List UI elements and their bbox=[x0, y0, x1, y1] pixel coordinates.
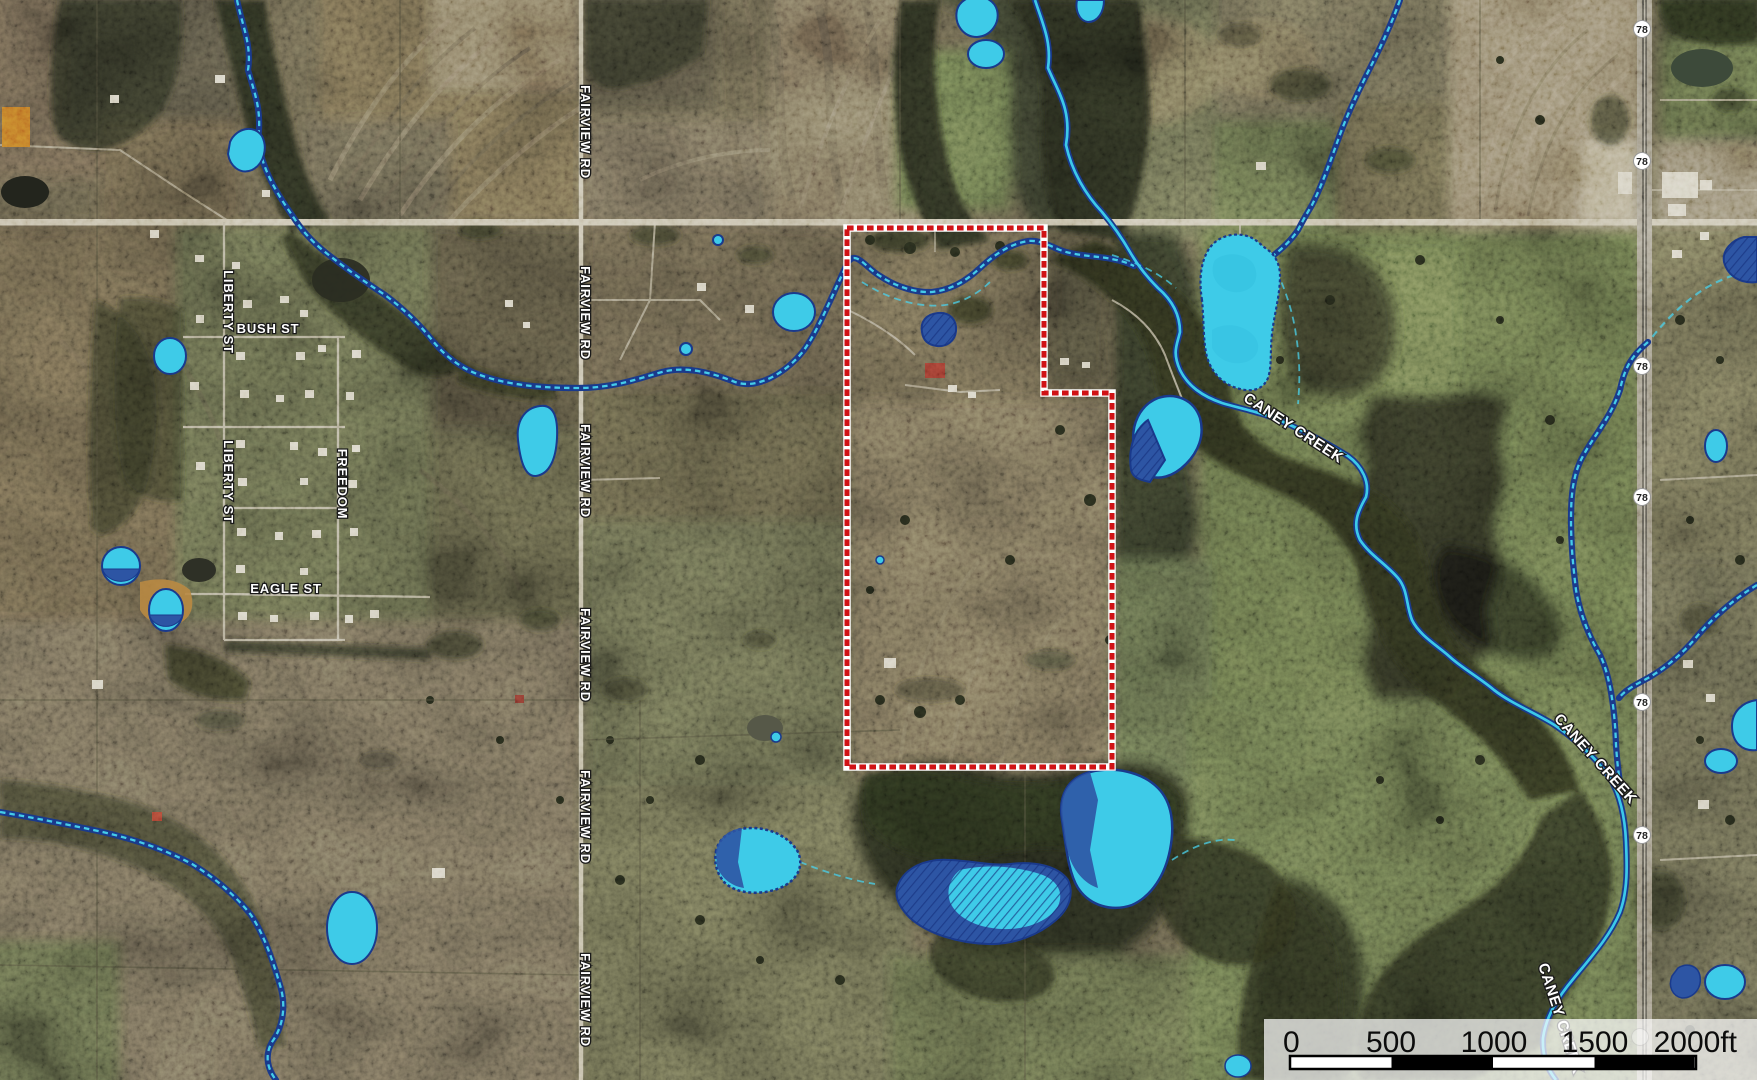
svg-text:1500: 1500 bbox=[1562, 1026, 1629, 1059]
svg-text:0: 0 bbox=[1283, 1026, 1300, 1059]
svg-text:78: 78 bbox=[1636, 492, 1648, 504]
svg-text:78: 78 bbox=[1636, 697, 1648, 709]
svg-text:78: 78 bbox=[1636, 24, 1648, 36]
svg-text:FAIRVIEW RD: FAIRVIEW RD bbox=[578, 85, 593, 179]
svg-text:FAIRVIEW RD: FAIRVIEW RD bbox=[578, 770, 593, 864]
svg-text:1000: 1000 bbox=[1461, 1026, 1528, 1059]
svg-text:78: 78 bbox=[1636, 361, 1648, 373]
svg-text:78: 78 bbox=[1636, 156, 1648, 168]
svg-text:BUSH ST: BUSH ST bbox=[237, 321, 300, 336]
svg-text:78: 78 bbox=[1636, 830, 1648, 842]
svg-text:FAIRVIEW RD: FAIRVIEW RD bbox=[578, 953, 593, 1047]
svg-text:FAIRVIEW RD: FAIRVIEW RD bbox=[578, 424, 593, 518]
svg-text:FAIRVIEW RD: FAIRVIEW RD bbox=[578, 608, 593, 702]
svg-text:LIBERTY ST: LIBERTY ST bbox=[221, 270, 236, 354]
svg-text:LIBERTY ST: LIBERTY ST bbox=[221, 440, 236, 524]
svg-text:FREEDOM: FREEDOM bbox=[335, 449, 350, 520]
svg-text:EAGLE ST: EAGLE ST bbox=[250, 581, 321, 596]
svg-text:2000ft: 2000ft bbox=[1654, 1026, 1738, 1059]
svg-text:500: 500 bbox=[1366, 1026, 1416, 1059]
svg-text:FAIRVIEW RD: FAIRVIEW RD bbox=[578, 266, 593, 360]
